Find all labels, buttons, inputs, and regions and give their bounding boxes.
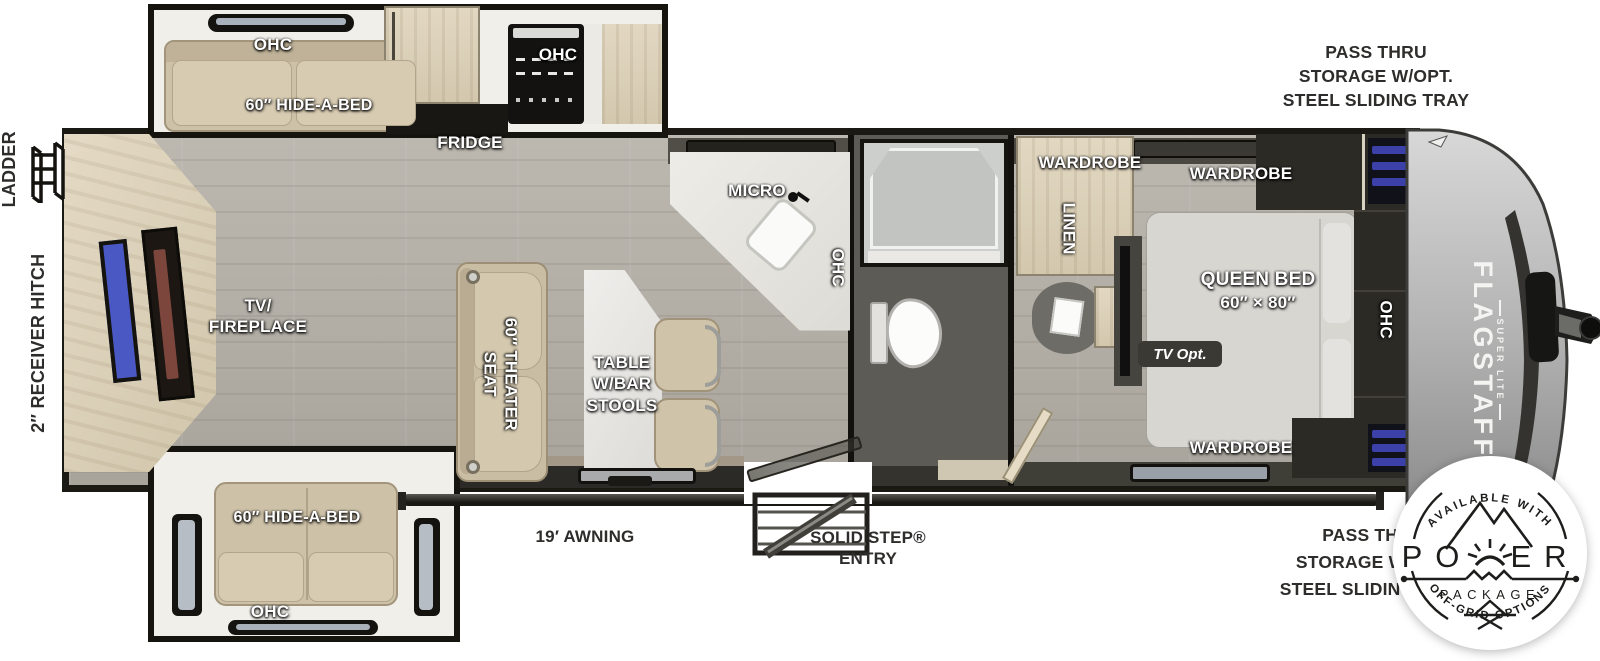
badge-power-left: PO — [1402, 539, 1473, 574]
badge-package: PACKAGE — [1440, 587, 1540, 602]
bath-threshold — [938, 460, 1008, 480]
queen-bed-label: QUEEN BED 60″ × 80″ — [1158, 268, 1358, 313]
range-stove — [508, 24, 584, 124]
kitchen-upper-cabinet — [602, 24, 662, 124]
bedroom-ohc-label: OHC — [1375, 290, 1396, 350]
rv-floorplan: TV/ FIREPLACE LADDER 2″ RECEIVER HITCH O… — [0, 0, 1600, 661]
range-ohc-label: OHC — [525, 44, 591, 65]
bottom-slide-ohc-label: OHC — [237, 601, 303, 622]
power-package-badge: AVAILABLE WITH OFF-GRID OPTIONS PO ER PA… — [1390, 453, 1590, 653]
ladder-icon — [24, 141, 70, 203]
ladder-label: LADDER — [0, 119, 20, 219]
receiver-hitch-label: 2″ RECEIVER HITCH — [27, 223, 50, 463]
bedroom-bottom-window — [1130, 464, 1270, 482]
kitchen-counter-strip — [584, 24, 602, 124]
bottom-slide-window-right — [414, 518, 440, 616]
sofa-cushion — [296, 60, 416, 126]
badge-power-right: ER — [1510, 539, 1579, 574]
awning-bar — [402, 494, 1380, 506]
queen-bed — [1146, 212, 1358, 448]
awning-label: 19′ AWNING — [500, 526, 670, 547]
sofa-cushion — [218, 552, 304, 602]
bedroom-vanity — [1032, 282, 1102, 354]
bedroom-wardrobe-top-label: WARDROBE — [1171, 163, 1311, 184]
brand-name: FLAGSTAFF — [1468, 261, 1498, 460]
micro-label: MICRO — [717, 180, 797, 201]
bedroom-wardrobe-bottom-label: WARDROBE — [1171, 437, 1311, 458]
bottom-slide-ohc-window — [228, 620, 378, 635]
bath-wardrobe-label: WARDROBE — [1020, 152, 1160, 173]
top-slide-ohc-window — [208, 14, 354, 32]
tv-opt-label: TV Opt. — [1153, 346, 1206, 363]
bottom-slide-window-left — [172, 514, 202, 616]
top-slide-ohc-label: OHC — [240, 34, 306, 55]
kitchen-ohc-label: OHC — [827, 238, 848, 298]
entry-label: SOLID STEP® ENTRY — [783, 527, 953, 570]
theater-seat-label: 60″ THEATER SEAT — [479, 304, 522, 444]
pass-thru-top-label: PASS THRU STORAGE W/OPT. STEEL SLIDING T… — [1245, 40, 1507, 112]
tv-fireplace-label: TV/ FIREPLACE — [188, 295, 328, 338]
shower — [860, 139, 1008, 267]
hide-a-bed-top-label: 60″ HIDE-A-BED — [243, 96, 375, 116]
hide-a-bed-bottom-label: 60″ HIDE-A-BED — [231, 508, 363, 528]
sofa-cushion — [172, 60, 292, 126]
brand-sub: SUPER LITE — [1495, 318, 1505, 401]
sofa-cushion — [308, 552, 394, 602]
fridge-label: FRIDGE — [420, 132, 520, 153]
table-label: TABLE W/BAR STOOLS — [572, 352, 672, 416]
awning-bracket-right — [1376, 492, 1384, 510]
toilet — [870, 298, 946, 370]
awning-bracket-left — [398, 492, 406, 510]
tv-opt-badge: TV Opt. — [1138, 341, 1222, 367]
table-base — [608, 476, 652, 486]
linen-label: LINEN — [1058, 194, 1079, 264]
